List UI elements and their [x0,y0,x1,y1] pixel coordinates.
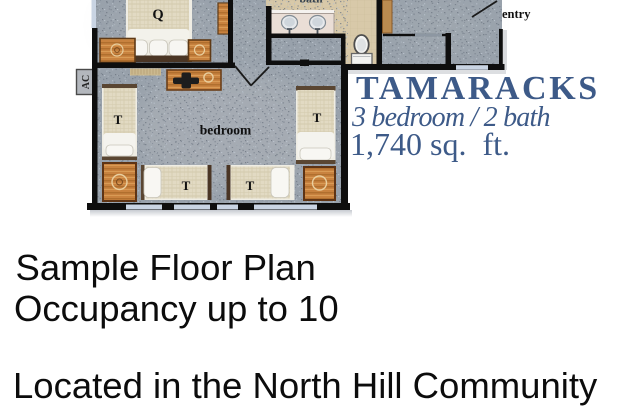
svg-text:bath: bath [299,0,323,6]
svg-text:T: T [313,110,322,125]
svg-text:T: T [182,178,191,193]
svg-text:T: T [246,178,255,193]
svg-text:T: T [114,112,123,127]
svg-text:entry: entry [502,7,531,21]
svg-text:AC: AC [81,75,92,89]
svg-text:Q: Q [152,7,163,23]
svg-text:bedroom: bedroom [200,123,252,138]
